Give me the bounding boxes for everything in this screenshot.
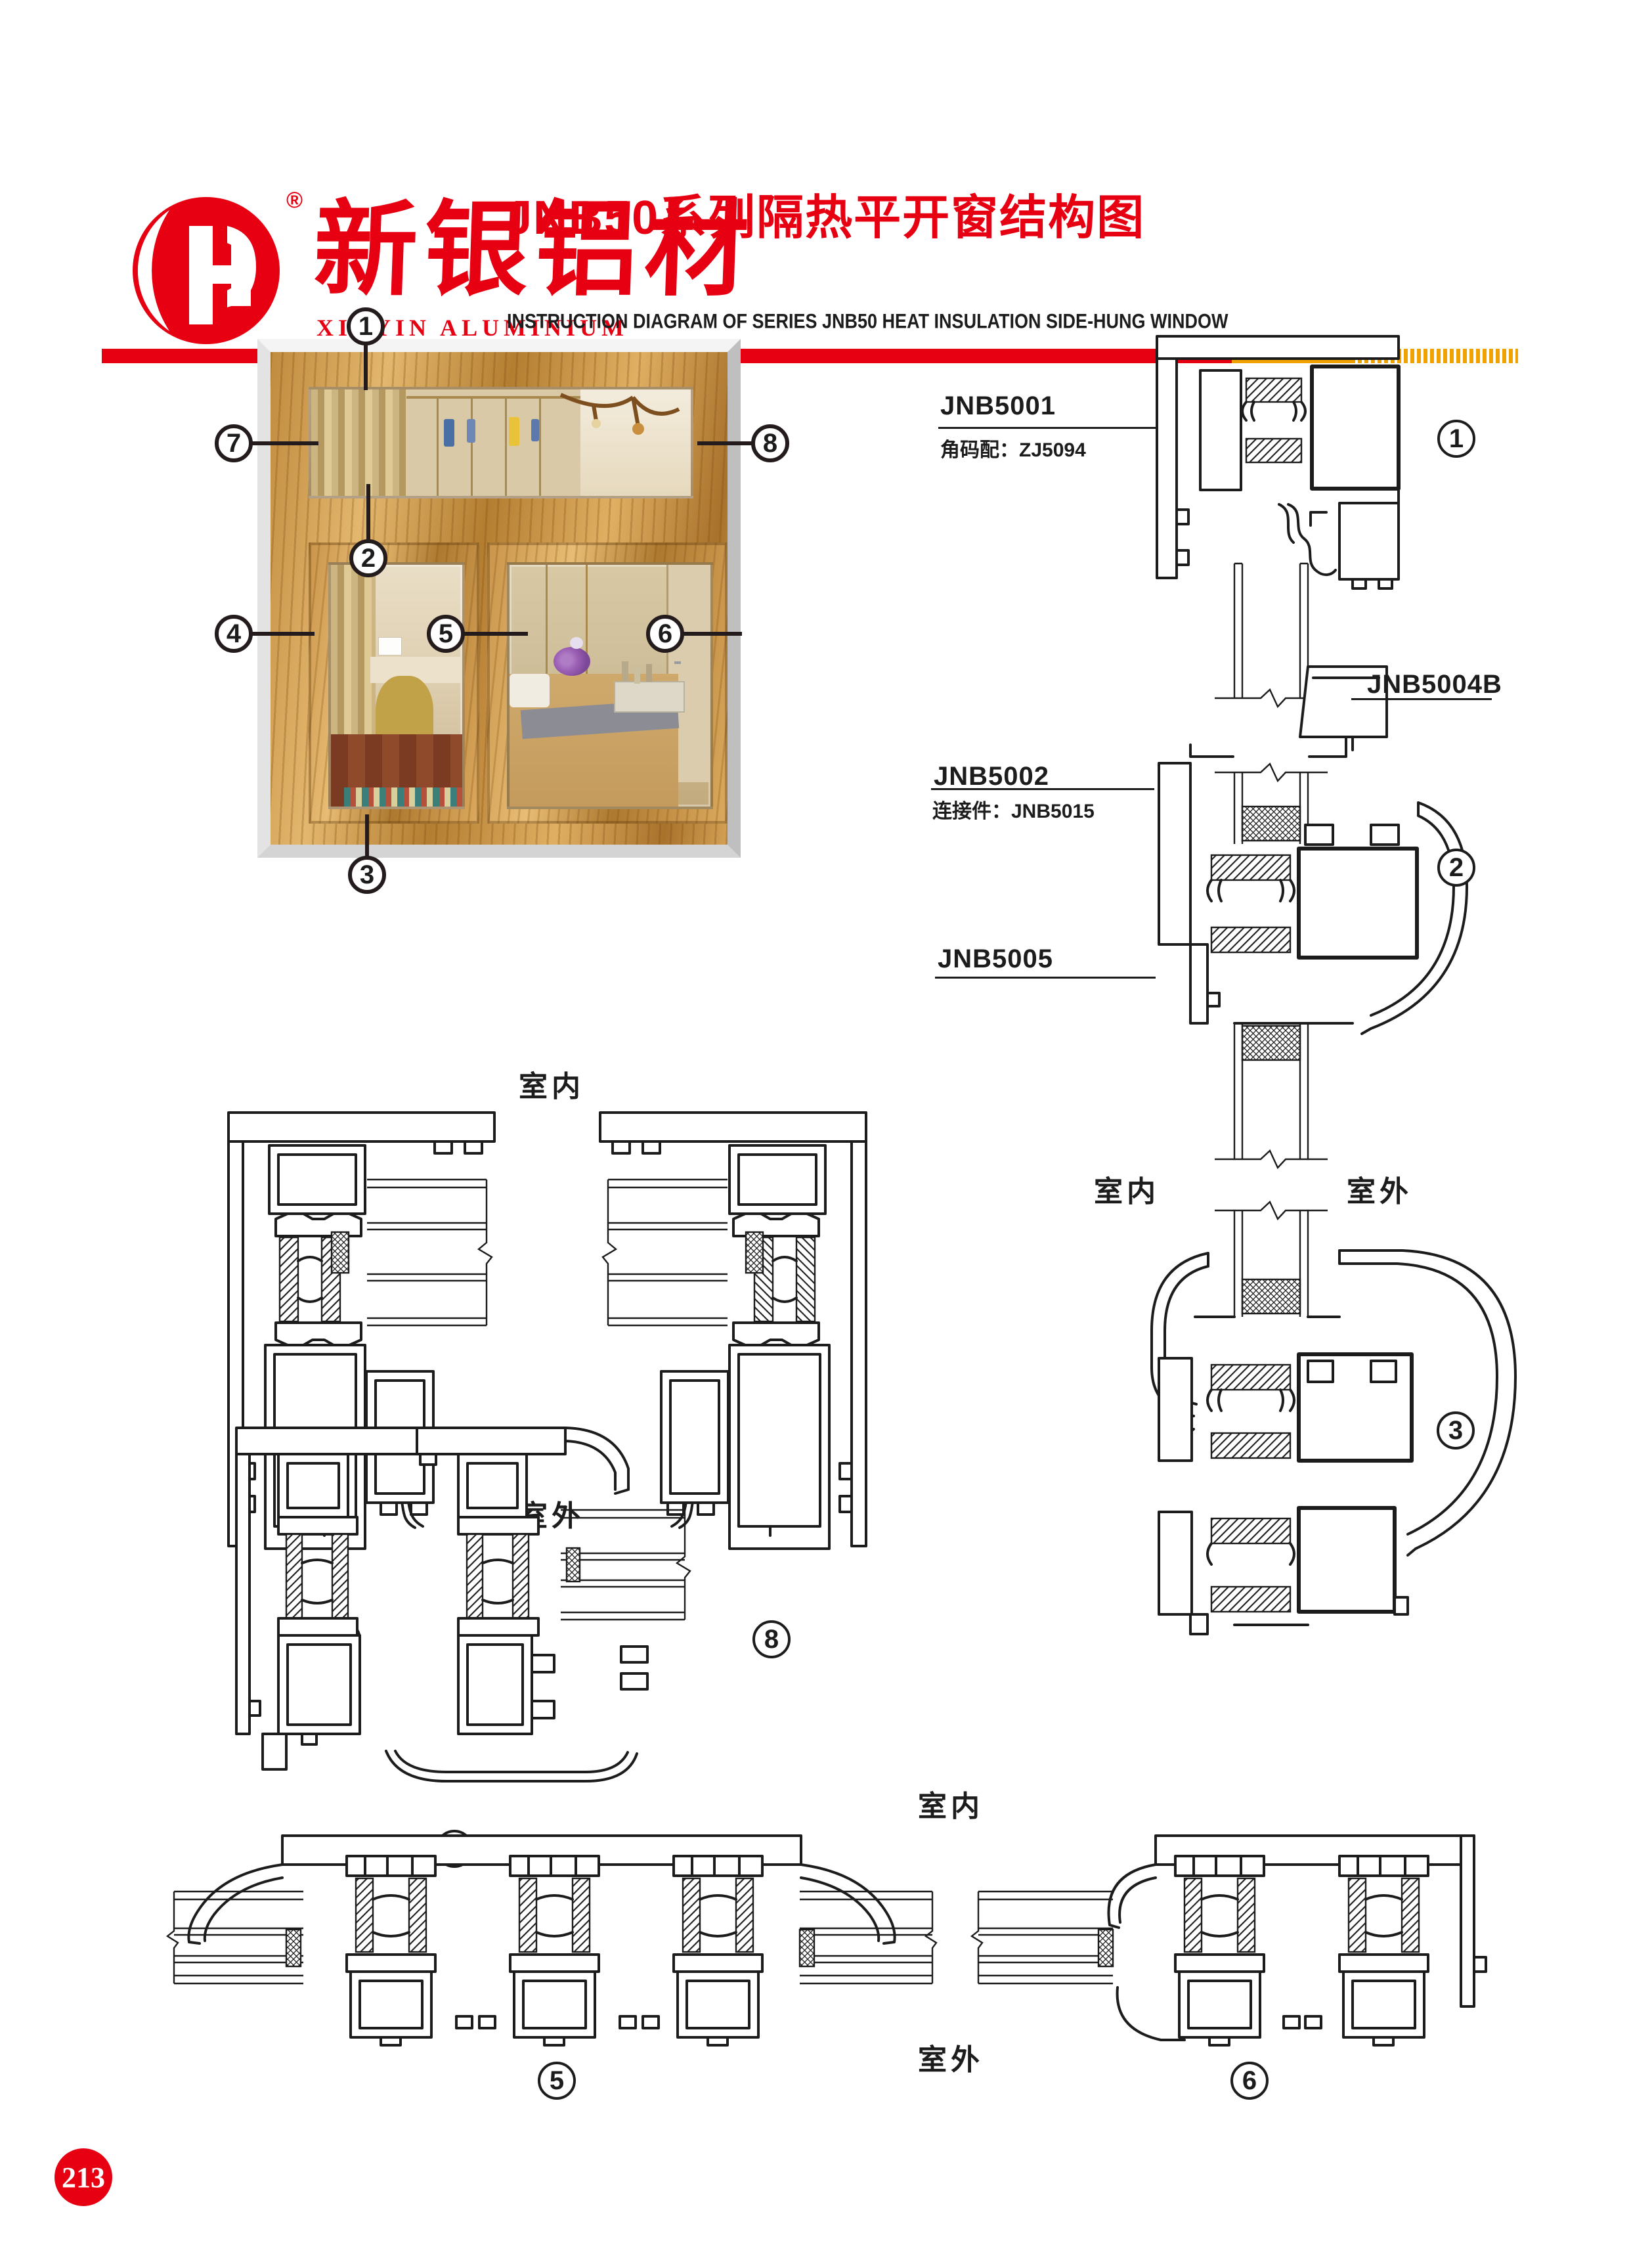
detail-marker-1: 1 <box>1437 420 1475 458</box>
callout-2: 2 <box>349 539 387 577</box>
callout-8: 8 <box>751 424 789 462</box>
note-jnb5002: 连接件：JNB5015 <box>932 795 1095 824</box>
callout-7: 7 <box>215 424 253 462</box>
chandelier-icon <box>554 389 685 442</box>
callout-4: 4 <box>215 615 253 653</box>
page-number-badge: 213 <box>54 2148 112 2206</box>
note-jnb5001: 角码配：ZJ5094 <box>940 433 1086 462</box>
detail-4-drawing <box>223 1419 696 1786</box>
detail-5 <box>167 1836 936 2045</box>
callout-3: 3 <box>348 856 386 894</box>
label-jnb5001: JNB5001 <box>940 391 1056 421</box>
label-jnb5002: JNB5002 <box>934 762 1049 791</box>
callout-line-4 <box>251 632 315 636</box>
brand-logo-icon <box>129 192 290 349</box>
detail-marker-8: 8 <box>752 1620 791 1658</box>
leader-jnb5005 <box>935 977 1156 979</box>
page-title: JNB50系列隔热平开窗结构图 <box>506 194 1145 242</box>
page-number: 213 <box>62 2161 105 2194</box>
leader-jnb5002 <box>931 788 1154 790</box>
window-left-sash-glass <box>328 562 465 809</box>
detail-1 <box>1157 336 1399 588</box>
window-upper-glass <box>309 387 693 498</box>
callout-line-2 <box>366 484 370 541</box>
detail-4 <box>236 1428 690 1781</box>
leader-jnb5004b <box>1351 698 1492 700</box>
catalog-page: ® 新银铝材 XINYIN ALUMINIUM JNB50系列隔热平开窗结构图 … <box>0 0 1652 2258</box>
window-left-sash <box>309 542 479 824</box>
label-jnb5005: JNB5005 <box>938 944 1053 974</box>
indoor-label-56: 室内 <box>918 1782 984 1825</box>
callout-line-1 <box>364 344 368 390</box>
detail-marker-2: 2 <box>1437 849 1475 887</box>
callout-line-3 <box>365 814 369 858</box>
label-jnb5004b: JNB5004B <box>1367 670 1502 699</box>
detail-1-2-3-drawing <box>919 315 1652 1635</box>
callout-line-8 <box>697 441 752 445</box>
registered-mark: ® <box>286 188 303 213</box>
window-right-sash <box>487 542 728 824</box>
outdoor-label-right: 室外 <box>1347 1168 1412 1210</box>
detail-5-drawing <box>158 1800 946 2056</box>
window-right-sash-glass <box>507 562 713 809</box>
callout-line-5 <box>464 632 528 636</box>
callout-6: 6 <box>646 615 684 653</box>
callout-5: 5 <box>427 615 465 653</box>
callout-1: 1 <box>347 307 385 345</box>
indoor-label-78: 室内 <box>519 1063 584 1105</box>
leader-jnb5001 <box>938 427 1158 429</box>
detail-6-drawing <box>952 1800 1615 2056</box>
indoor-label-right: 室内 <box>1094 1168 1160 1210</box>
detail-marker-3: 3 <box>1437 1411 1475 1450</box>
window-wood-frame <box>271 352 728 845</box>
detail-6 <box>972 1836 1486 2045</box>
detail-2 <box>1159 667 1467 1034</box>
callout-line-6 <box>683 632 742 636</box>
detail-marker-6: 6 <box>1230 2062 1269 2100</box>
callout-line-7 <box>251 441 318 445</box>
detail-marker-5: 5 <box>538 2062 576 2100</box>
outdoor-label-56: 室外 <box>918 2036 984 2078</box>
window-photo-frame <box>257 339 741 858</box>
